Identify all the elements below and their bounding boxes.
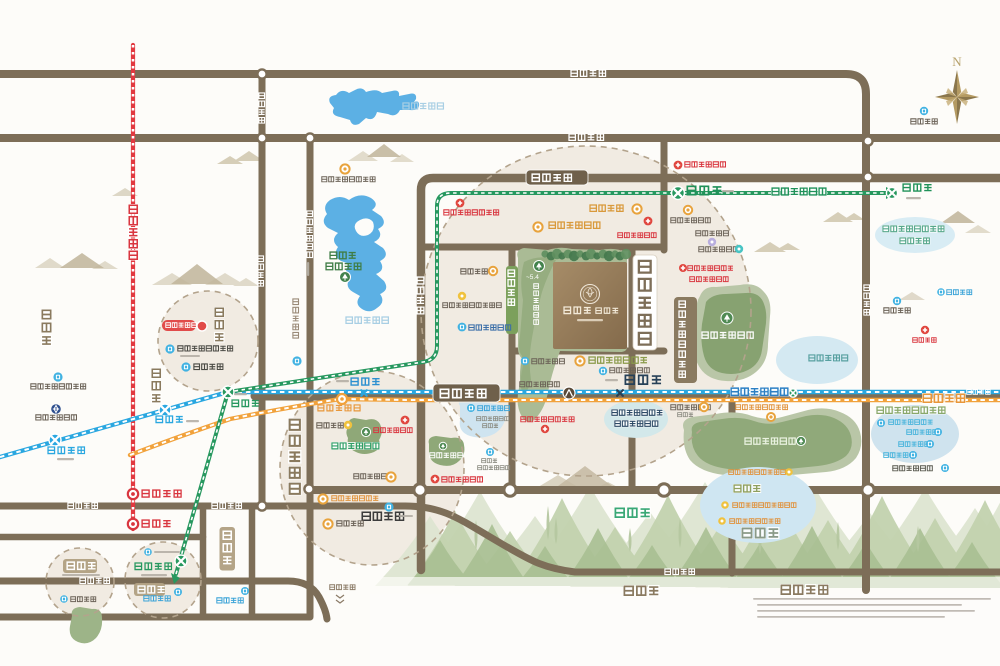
svg-text:N: N (952, 54, 962, 69)
svg-text:~5.4: ~5.4 (526, 274, 539, 281)
